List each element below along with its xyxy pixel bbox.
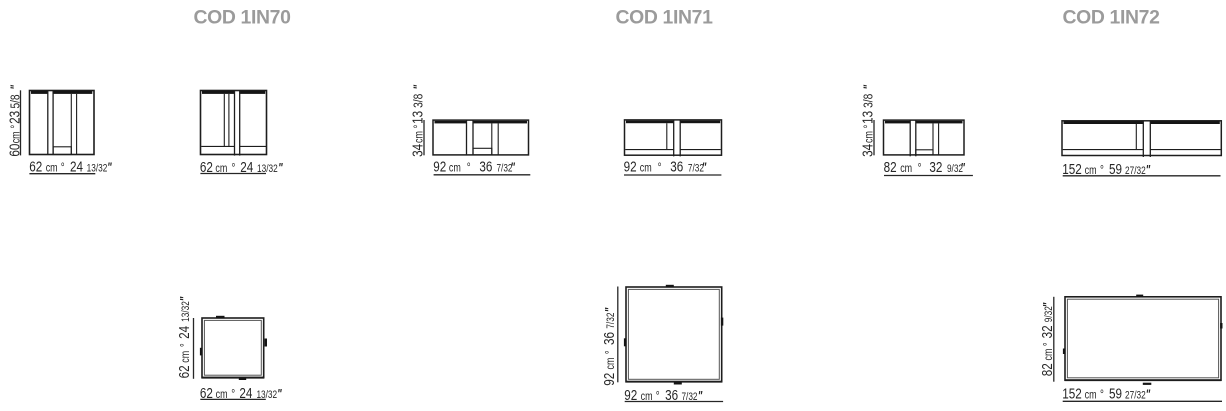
svg-text:COD 1IN70: COD 1IN70 <box>193 7 290 29</box>
svg-text:34cm°133/8": 34cm°133/8" <box>409 84 426 157</box>
svg-text:COD 1IN72: COD 1IN72 <box>1062 7 1159 29</box>
svg-text:34cm°133/8": 34cm°133/8" <box>859 84 876 157</box>
svg-text:COD 1IN71: COD 1IN71 <box>615 7 713 29</box>
